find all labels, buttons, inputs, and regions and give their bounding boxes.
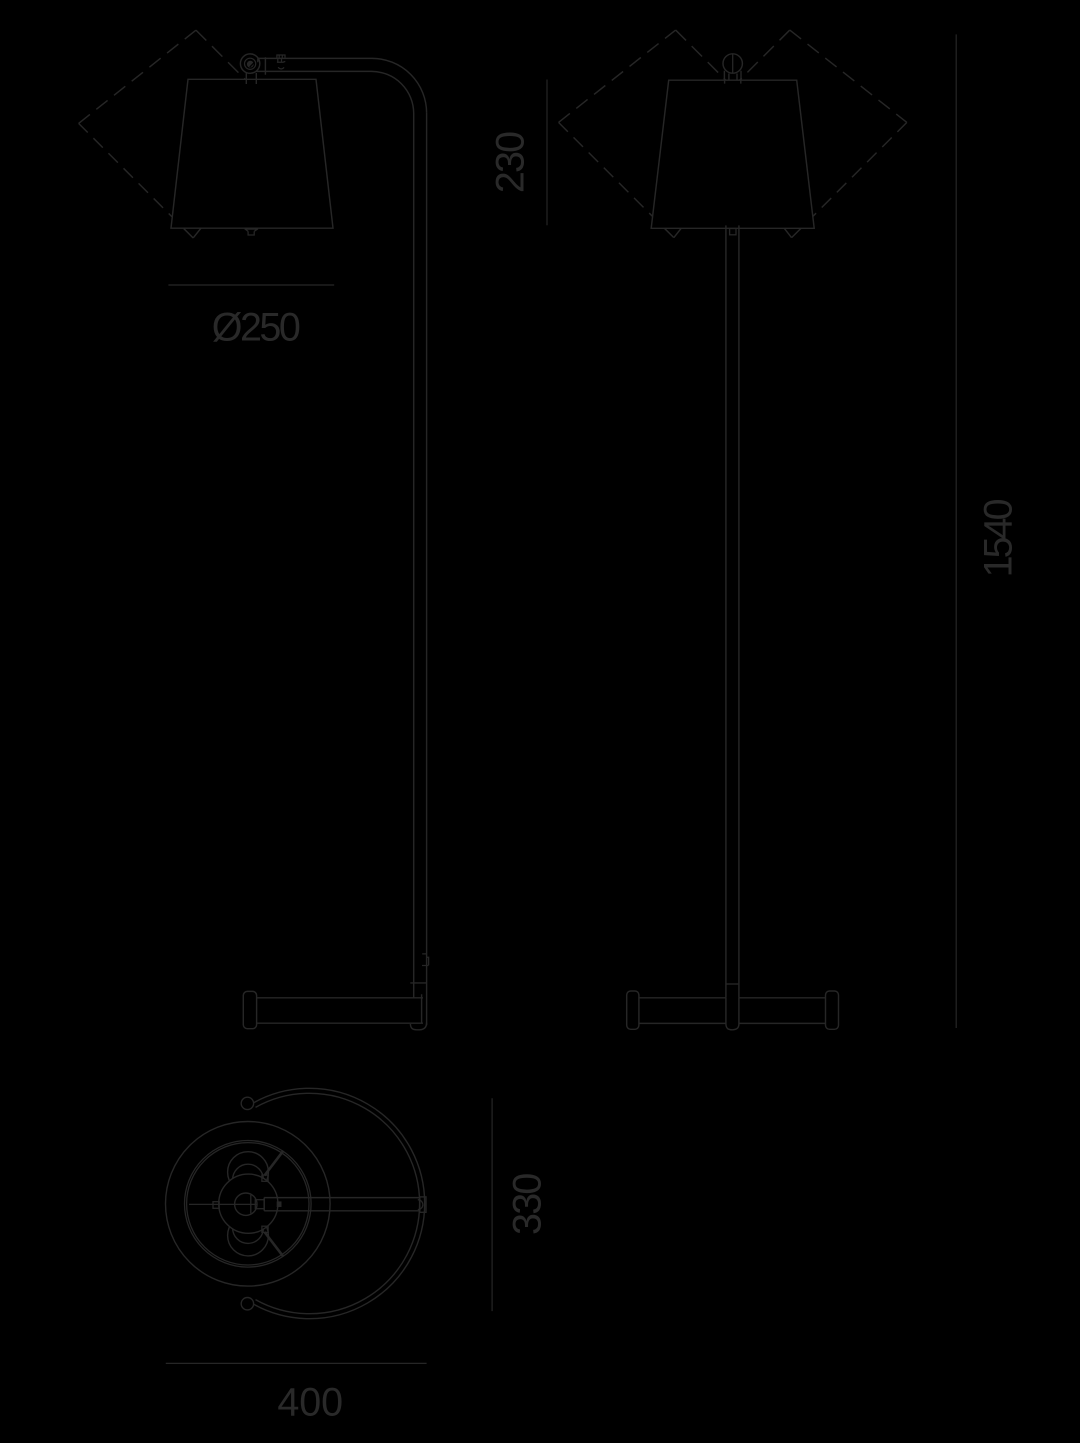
svg-text:1540: 1540: [977, 498, 1021, 577]
svg-text:400: 400: [277, 1381, 343, 1425]
svg-text:230: 230: [489, 131, 533, 193]
svg-text:Ø250: Ø250: [212, 305, 301, 349]
svg-text:330: 330: [506, 1173, 550, 1235]
